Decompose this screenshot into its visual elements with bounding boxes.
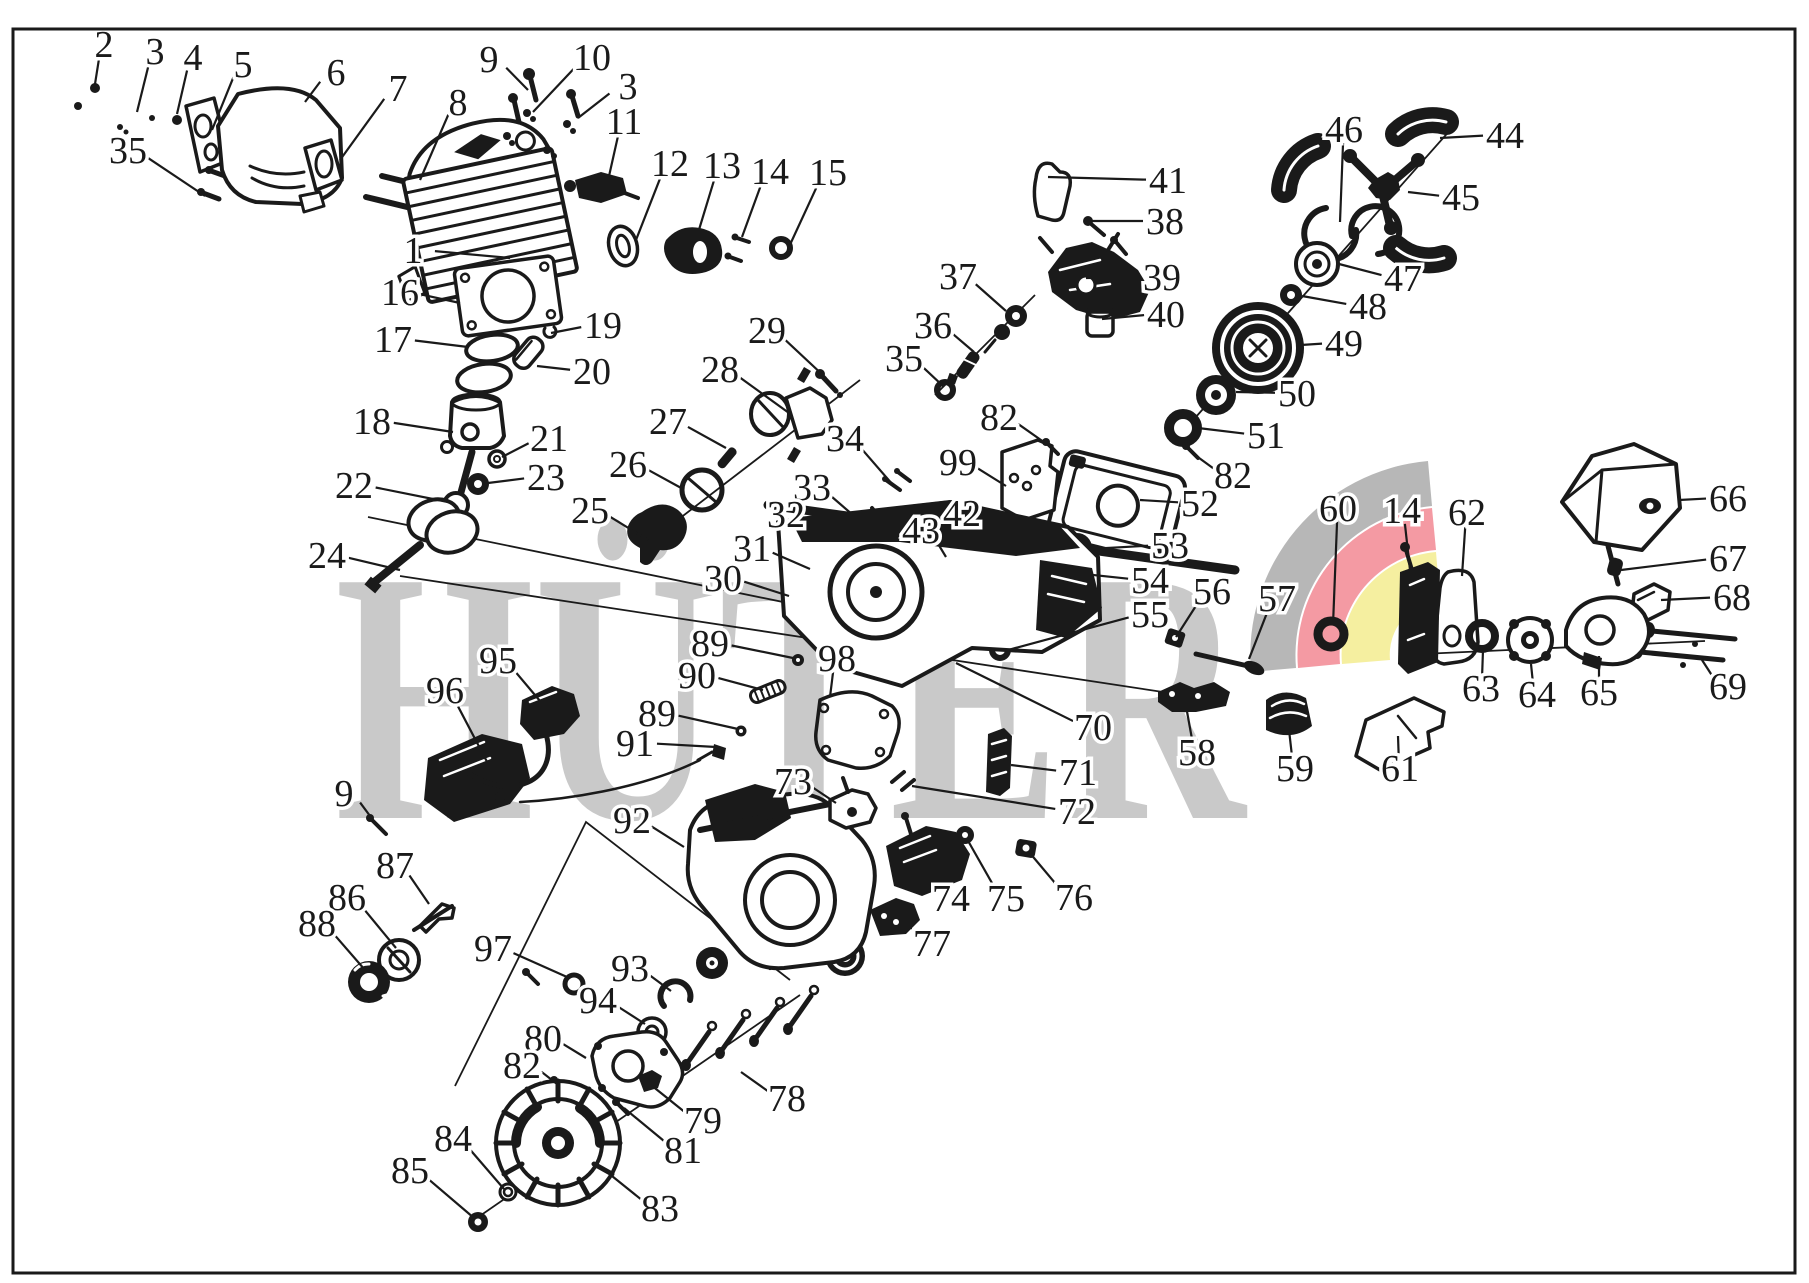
- part-number-label: 11: [606, 101, 643, 143]
- part-number-label: 44: [1486, 115, 1524, 157]
- leader-line: [1086, 277, 1140, 278]
- part-number-label: 20: [573, 351, 611, 393]
- part-number-label: 58: [1178, 732, 1216, 774]
- part-number-label: 82: [980, 397, 1018, 439]
- part-number-label: 22: [335, 465, 373, 507]
- part-number-label: 27: [649, 401, 687, 443]
- part-number-label: 52: [1181, 483, 1219, 525]
- exploded-parts-diagram-page: HÜTER: [0, 0, 1809, 1283]
- part-number-label: 71: [1059, 752, 1097, 794]
- lock-nut-drawing: [1015, 838, 1038, 858]
- part-number-label: 14: [1383, 490, 1421, 532]
- part-number-label: 68: [1713, 577, 1751, 619]
- part-number-label: 30: [704, 558, 742, 600]
- rubber-bumper-drawing: [986, 728, 1012, 796]
- part-number-label: 74: [932, 878, 970, 920]
- cylinder-gasket-drawing: [454, 255, 562, 336]
- clutch-nut-drawing: [1280, 284, 1302, 306]
- part-number-label: 67: [1709, 538, 1747, 580]
- part-number-label: 35: [109, 130, 147, 172]
- needle-bearing-drawing: [467, 473, 489, 495]
- carb-spacer-drawing: [1087, 307, 1113, 336]
- part-number-label: 85: [391, 1150, 429, 1192]
- leader-line: [1236, 392, 1275, 393]
- part-number-label: 49: [1325, 323, 1363, 365]
- cable-nut-b-drawing: [736, 726, 747, 737]
- part-number-label: 34: [826, 418, 864, 460]
- part-number-label: 62: [1448, 492, 1486, 534]
- part-number-label: 70: [1074, 707, 1112, 749]
- part-number-label: 13: [703, 145, 741, 187]
- part-number-label: 17: [374, 319, 412, 361]
- part-number-label: 51: [1247, 415, 1285, 457]
- leader-line: [1301, 344, 1322, 345]
- part-number-label: 95: [479, 640, 517, 682]
- part-number-label: 41: [1149, 160, 1187, 202]
- part-number-label: 5: [234, 44, 253, 86]
- part-number-label: 99: [939, 442, 977, 484]
- part-number-label: 32: [767, 494, 805, 536]
- part-number-label: 23: [527, 457, 565, 499]
- part-number-label: 60: [1319, 488, 1357, 530]
- part-number-label: 94: [579, 980, 617, 1022]
- part-number-label: 6: [327, 52, 346, 94]
- choke-lever-drawing: [1034, 163, 1070, 220]
- part-number-label: 16: [381, 272, 419, 314]
- part-number-label: 24: [308, 535, 346, 577]
- part-number-label: 65: [1580, 672, 1618, 714]
- bushing-drawing: [956, 826, 974, 844]
- part-number-label: 21: [530, 418, 568, 460]
- part-number-label: 42: [943, 493, 981, 535]
- part-number-label: 87: [376, 845, 414, 887]
- part-number-label: 43: [902, 510, 940, 552]
- part-number-label: 1: [404, 230, 423, 272]
- part-number-label: 47: [1384, 258, 1422, 300]
- part-number-label: 28: [701, 349, 739, 391]
- part-number-label: 84: [434, 1118, 472, 1160]
- part-number-label: 56: [1193, 571, 1231, 613]
- drum-bearing-drawing: [1196, 375, 1236, 415]
- part-number-label: 26: [609, 444, 647, 486]
- leader-line: [1679, 499, 1706, 500]
- part-number-label: 92: [613, 800, 651, 842]
- part-number-label: 55: [1131, 594, 1169, 636]
- exploded-parts-diagram: HÜTER: [0, 0, 1809, 1283]
- part-number-label: 61: [1381, 748, 1419, 790]
- part-number-label: 35: [885, 338, 923, 380]
- part-number-label: 77: [913, 923, 951, 965]
- part-number-label: 82: [503, 1045, 541, 1087]
- part-number-label: 45: [1442, 177, 1480, 219]
- part-number-label: 8: [449, 82, 468, 124]
- piston-drawing: [450, 394, 504, 448]
- part-number-label: 64: [1518, 674, 1556, 716]
- part-number-label: 12: [651, 143, 689, 185]
- part-number-label: 50: [1278, 373, 1316, 415]
- part-number-label: 7: [389, 68, 408, 110]
- part-number-label: 9: [480, 39, 499, 81]
- part-number-label: 29: [748, 310, 786, 352]
- part-number-label: 38: [1146, 201, 1184, 243]
- part-number-label: 40: [1147, 294, 1185, 336]
- part-number-label: 72: [1058, 791, 1096, 833]
- part-number-label: 91: [616, 723, 654, 765]
- part-number-label: 63: [1462, 668, 1500, 710]
- part-number-label: 69: [1709, 666, 1747, 708]
- part-number-label: 73: [774, 761, 812, 803]
- part-number-label: 76: [1055, 877, 1093, 919]
- part-number-label: 39: [1143, 257, 1181, 299]
- part-number-label: 88: [298, 903, 336, 945]
- drive-flange-drawing: [1508, 618, 1552, 662]
- part-number-label: 83: [641, 1188, 679, 1230]
- part-number-label: 3: [146, 31, 165, 73]
- clutch-washer-drawing: [1296, 243, 1338, 285]
- part-number-label: 10: [573, 37, 611, 79]
- part-number-label: 57: [1258, 578, 1296, 620]
- cable-nut-a-drawing: [792, 654, 804, 666]
- part-number-label: 96: [426, 670, 464, 712]
- part-number-label: 46: [1325, 109, 1363, 151]
- part-number-label: 9: [335, 773, 354, 815]
- part-number-label: 78: [768, 1078, 806, 1120]
- bar-plate-drawing: [1002, 440, 1058, 520]
- part-number-label: 15: [809, 152, 847, 194]
- part-number-label: 81: [664, 1130, 702, 1172]
- part-number-label: 37: [939, 256, 977, 298]
- part-number-label: 18: [353, 401, 391, 443]
- part-number-label: 19: [584, 305, 622, 347]
- part-number-label: 97: [474, 928, 512, 970]
- part-number-label: 75: [987, 878, 1025, 920]
- part-number-label: 90: [678, 655, 716, 697]
- part-number-label: 66: [1709, 478, 1747, 520]
- part-number-label: 48: [1349, 286, 1387, 328]
- part-number-label: 4: [184, 37, 203, 79]
- part-number-label: 59: [1276, 748, 1314, 790]
- part-number-label: 25: [571, 490, 609, 532]
- part-number-label: 98: [818, 638, 856, 680]
- part-number-label: 82: [1214, 455, 1252, 497]
- part-number-label: 14: [751, 151, 789, 193]
